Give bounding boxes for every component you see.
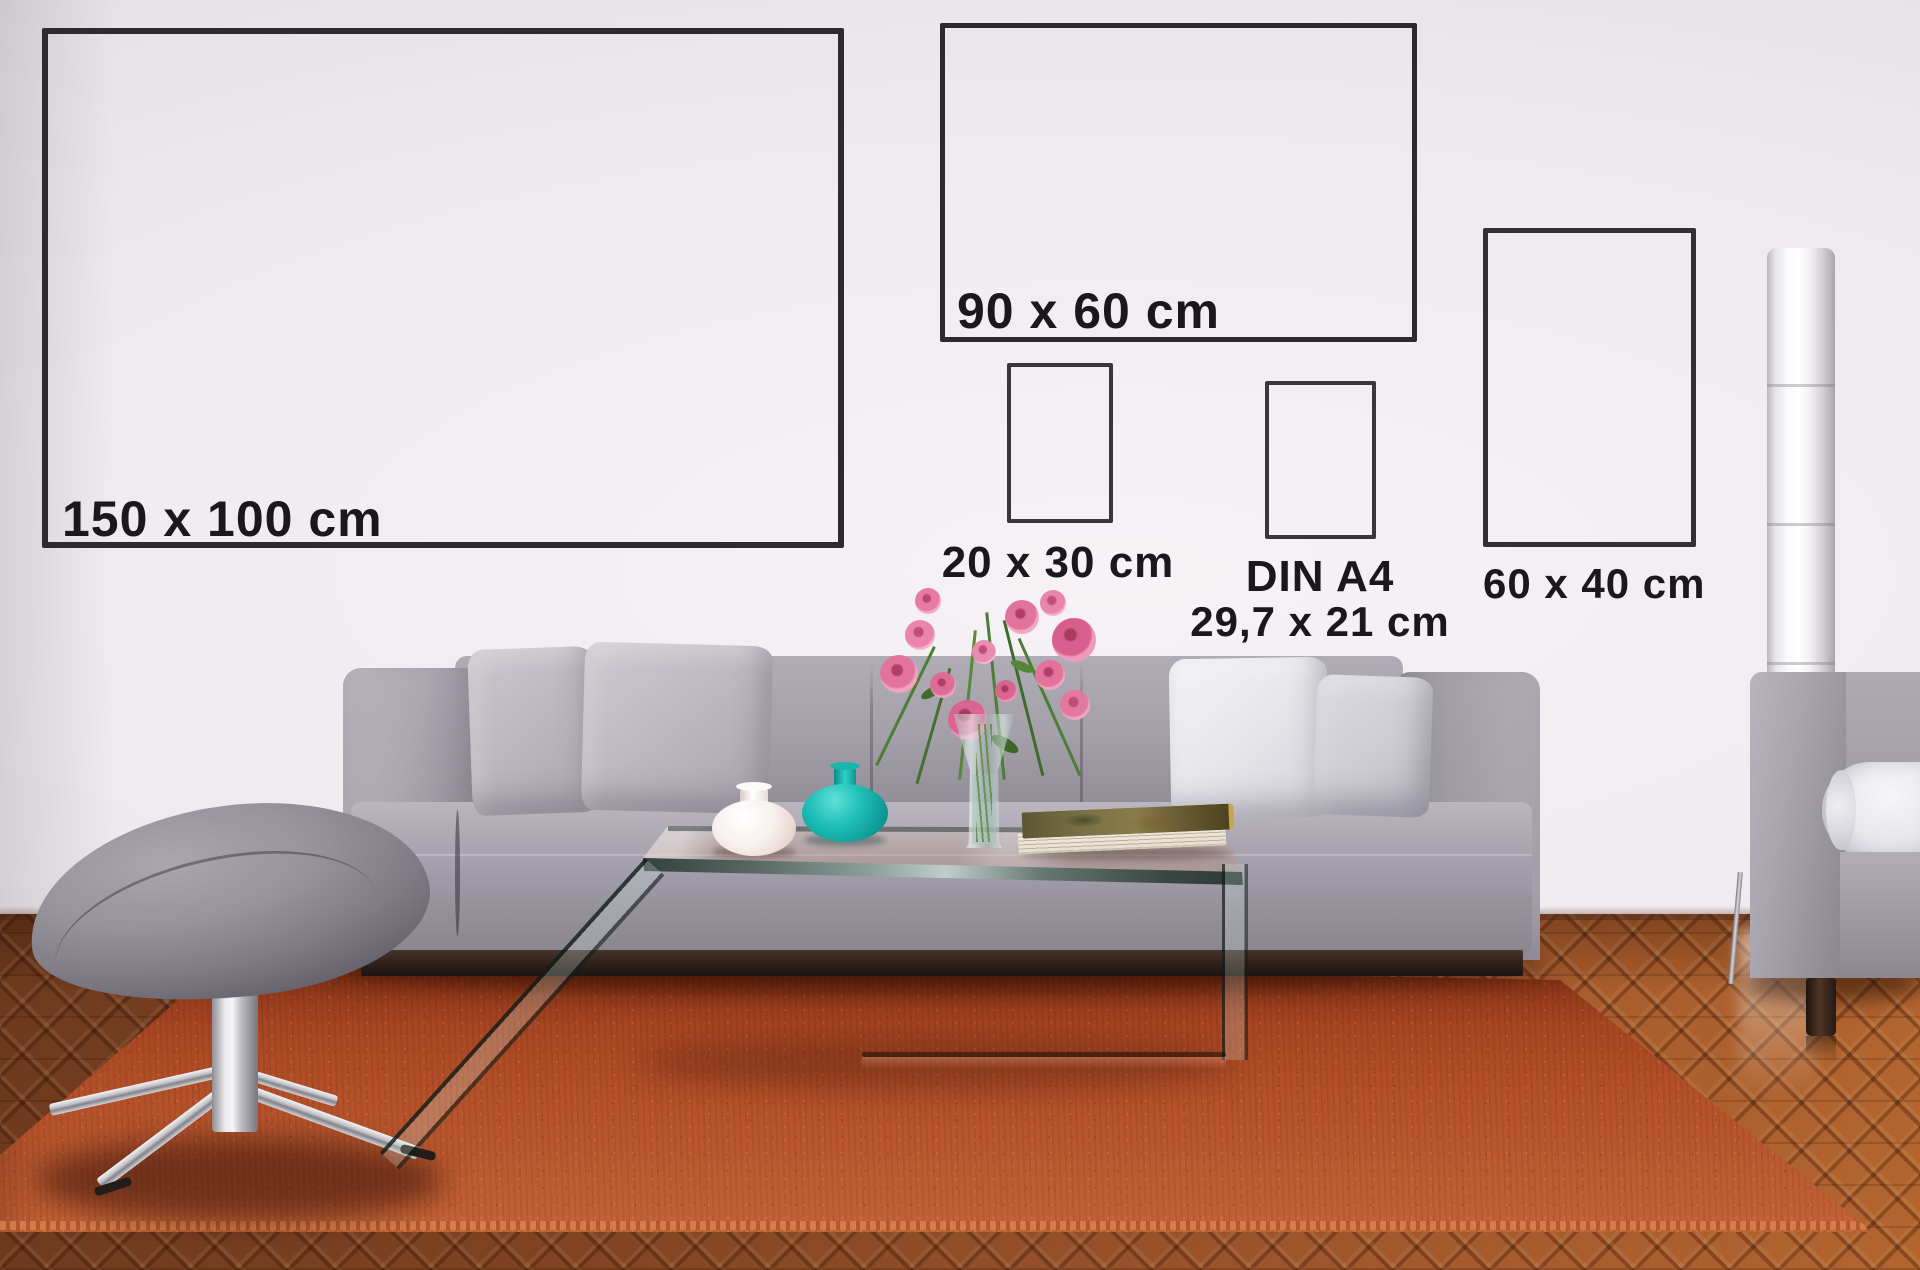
table-base-reflection	[862, 1057, 1226, 1069]
size-frame-60x40	[1483, 228, 1696, 547]
flower-leaf	[1009, 658, 1035, 676]
flower-bloom	[905, 620, 935, 650]
flower-bloom	[995, 680, 1017, 702]
flower-bloom	[930, 672, 956, 698]
glass-flower-vase	[952, 714, 1016, 848]
floor-lamp	[1767, 248, 1835, 676]
size-label-60x40: 60 x 40 cm	[1483, 560, 1705, 608]
cushion-gray-1	[467, 646, 599, 816]
white-vase	[712, 780, 796, 860]
size-label-150x100: 150 x 100 cm	[62, 490, 383, 548]
size-frame-din-a4	[1265, 381, 1376, 539]
flower-bloom	[972, 640, 996, 664]
bolster-endcap	[1826, 770, 1856, 850]
right-sofa	[1750, 672, 1920, 1092]
white-vase-lip	[736, 782, 772, 791]
white-vase-body	[712, 800, 796, 856]
flower-bloom	[1052, 618, 1096, 662]
flower-bloom	[1040, 590, 1066, 616]
right-sofa-leg-reflection	[1806, 1036, 1836, 1062]
size-label-90x60: 90 x 60 cm	[957, 282, 1220, 340]
table-side-glass	[1222, 864, 1248, 1060]
right-sofa-leg	[1806, 978, 1836, 1036]
flower-bloom	[1060, 690, 1090, 720]
size-frame-20x30	[1007, 363, 1113, 523]
rug-fringe	[0, 1221, 1920, 1230]
flower-bloom	[1005, 600, 1039, 634]
cushion-white-2	[1313, 674, 1434, 818]
right-sofa-seat	[1840, 852, 1920, 978]
glass-vase-stems	[976, 724, 992, 842]
flower-bloom	[915, 588, 941, 614]
flower-bloom	[880, 655, 918, 693]
flower-bloom	[1035, 660, 1065, 690]
living-room-size-guide: 150 x 100 cm 90 x 60 cm 20 x 30 cm DIN A…	[0, 0, 1920, 1270]
size-sublabel-din-a4: 29,7 x 21 cm	[1178, 598, 1462, 646]
size-frame-150x100	[42, 28, 844, 548]
size-label-din-a4: DIN A4	[1220, 552, 1420, 602]
teal-vase-lip	[830, 762, 860, 770]
cushion-white-1	[1169, 657, 1330, 820]
